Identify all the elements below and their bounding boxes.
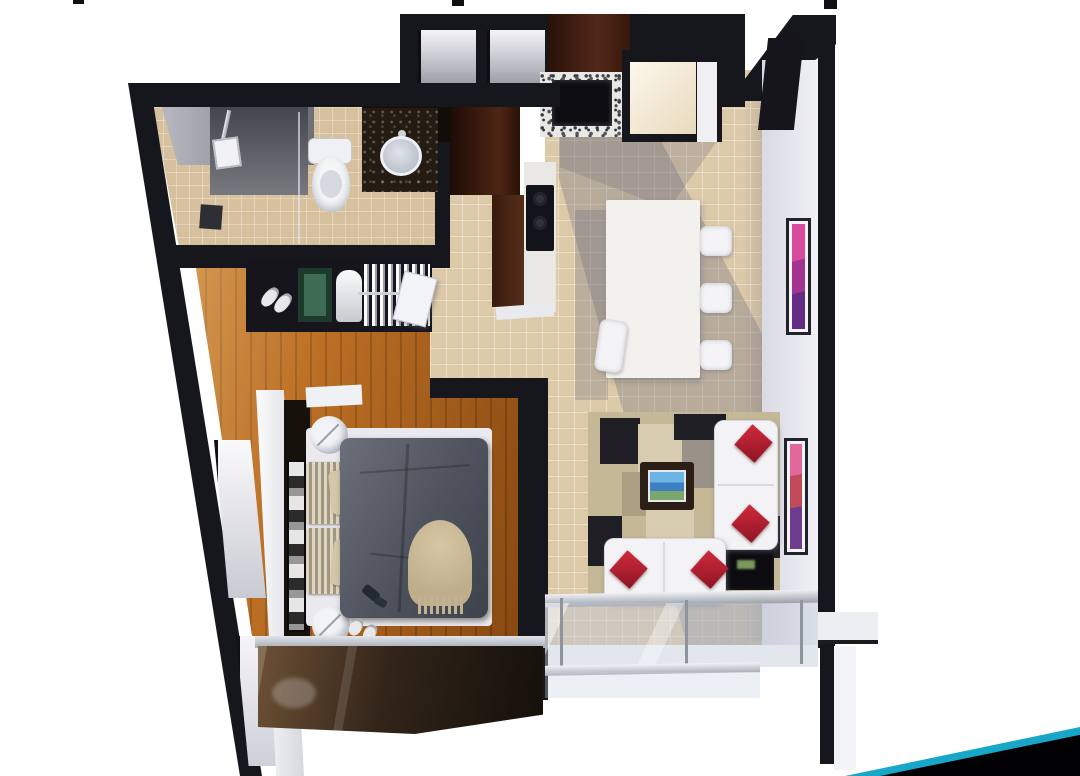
- cropped-text-remnant: [824, 0, 837, 9]
- throw-blanket: [408, 520, 472, 606]
- glass-post: [560, 598, 563, 668]
- cropped-text-remnant: [73, 0, 84, 4]
- bedroom-shelf: [306, 385, 363, 408]
- dining-chair: [700, 283, 732, 313]
- refrigerator-top: [630, 62, 696, 134]
- tv-screen: [648, 470, 686, 502]
- glass-reflection: [272, 678, 316, 708]
- shower-glass-partition: [298, 112, 300, 244]
- wall-art-purple: [792, 224, 805, 329]
- cropped-text-remnant: [452, 0, 464, 6]
- coffee-machine: [552, 80, 612, 126]
- glass-post: [685, 600, 688, 670]
- bathroom-sink: [380, 136, 422, 176]
- dining-chair: [700, 226, 732, 256]
- slide-canvas: [0, 0, 1080, 776]
- dining-chair: [700, 340, 732, 370]
- duvet-fold: [360, 464, 470, 474]
- rug-block: [600, 418, 640, 464]
- balcony-wall-face: [834, 646, 856, 770]
- kitchen-upper-cabinet: [548, 14, 630, 74]
- balcony-glass-panel: [545, 603, 818, 667]
- wall-art-red: [790, 444, 802, 549]
- outer-wall-right: [818, 18, 835, 648]
- blanket-fringe: [418, 596, 464, 614]
- outer-wall-top: [128, 83, 560, 107]
- headboard-art: [287, 460, 306, 632]
- wall-art-frame: [784, 438, 808, 555]
- lamp-arm: [319, 614, 342, 637]
- wall-art-frame: [786, 218, 811, 335]
- glass-post: [800, 600, 803, 664]
- balcony-glass-panel-lower: [545, 672, 760, 698]
- kitchen-counter-side: [492, 195, 526, 307]
- balcony-ledge: [818, 612, 878, 644]
- laundry-basket: [336, 270, 362, 322]
- cooktop-burner: [533, 216, 547, 230]
- shower-head: [212, 136, 242, 169]
- floor-shadow: [575, 210, 608, 400]
- fridge-side-panel: [697, 62, 717, 142]
- cabinet-decor: [737, 560, 755, 569]
- closet-storage-box-inner: [304, 274, 326, 316]
- cooktop-burner: [533, 192, 547, 206]
- sofa-seam: [718, 484, 774, 486]
- toilet-seat: [320, 170, 342, 198]
- lamp-arm: [317, 424, 340, 447]
- balcony-wall-edge: [820, 646, 834, 764]
- kitchen-tall-cabinet: [450, 107, 520, 195]
- floor-drain: [199, 204, 223, 229]
